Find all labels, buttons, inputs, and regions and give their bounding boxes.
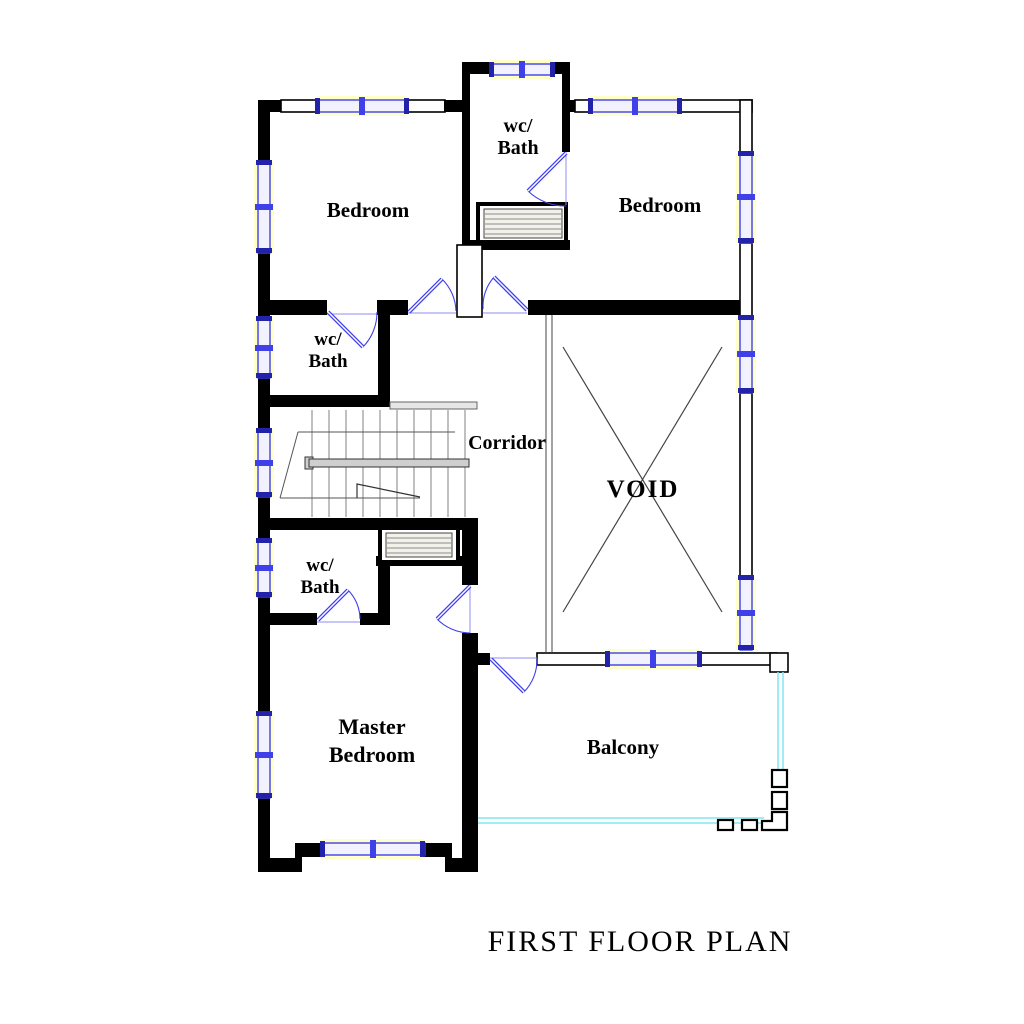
wall (575, 100, 590, 112)
room-label-master-line1: Master (338, 714, 405, 739)
wall (258, 300, 327, 315)
window (254, 316, 274, 378)
door (483, 277, 527, 313)
window (315, 96, 409, 116)
wall (553, 62, 570, 74)
railing-post (772, 792, 787, 809)
wall (528, 300, 742, 315)
room-label-corridor: Corridor (468, 432, 546, 454)
wall (562, 100, 576, 112)
wall (740, 100, 752, 153)
wall (462, 633, 478, 872)
railing-post (718, 820, 733, 830)
window (489, 60, 555, 79)
wall (700, 653, 777, 665)
wall (258, 613, 317, 625)
door (437, 585, 470, 633)
room-label-wc-bath-middle-line1: wc/ (314, 329, 342, 350)
wall (295, 843, 322, 857)
wall (462, 62, 491, 74)
staircase (280, 402, 477, 517)
window (254, 160, 274, 253)
corridor-void-divider (546, 315, 552, 653)
wall (462, 518, 478, 585)
wall (740, 243, 752, 317)
door (490, 658, 537, 692)
door (408, 279, 456, 313)
wall (462, 62, 470, 250)
wall (360, 613, 390, 625)
room-label-wc-bath-top-line1: wc/ (504, 115, 533, 137)
floor-plan-drawing: wc/ Bath Bedroom Bedroom wc/ Bath Corrid… (0, 0, 1024, 1024)
wall (258, 100, 270, 162)
room-label-master-line2: Bedroom (329, 742, 415, 767)
wall (407, 100, 445, 112)
wall (378, 315, 390, 403)
shaft-hatch-bottom (380, 528, 458, 562)
stair-direction-arrow (357, 484, 420, 498)
room-label-wc-bath-lower-line2: Bath (300, 577, 340, 598)
room-label-balcony: Balcony (587, 735, 660, 759)
railing-corner-post (762, 812, 787, 830)
window (254, 538, 274, 597)
shaft-hatch-top (478, 204, 566, 242)
plan-title: FIRST FLOOR PLAN (488, 925, 793, 958)
window (605, 649, 702, 669)
wall (377, 300, 408, 315)
wall (444, 100, 470, 112)
room-label-void: VOID (607, 476, 680, 503)
wall (740, 393, 752, 577)
window (588, 96, 682, 116)
door (528, 152, 566, 206)
room-label-wc-bath-top-line2: Bath (497, 137, 538, 159)
wall (537, 653, 607, 665)
window (736, 151, 756, 243)
wall (258, 395, 390, 407)
wall (457, 245, 482, 317)
floor-plan-page: wc/ Bath Bedroom Bedroom wc/ Bath Corrid… (0, 0, 1024, 1024)
wall (462, 653, 490, 665)
room-label-bedroom-left: Bedroom (327, 198, 410, 222)
room-label-wc-bath-middle-line2: Bath (308, 351, 348, 372)
room-label-bedroom-right: Bedroom (619, 193, 702, 217)
window (254, 428, 274, 497)
handrail (309, 459, 469, 467)
window (736, 315, 756, 393)
window (254, 711, 274, 798)
railing-post (772, 770, 787, 787)
railing-post (742, 820, 757, 830)
stair-landing-edge (390, 402, 477, 409)
wall (770, 653, 788, 672)
wall (281, 100, 317, 112)
window (736, 575, 756, 650)
wall (445, 858, 478, 872)
room-label-wc-bath-lower-line1: wc/ (306, 555, 334, 576)
window (320, 839, 425, 859)
